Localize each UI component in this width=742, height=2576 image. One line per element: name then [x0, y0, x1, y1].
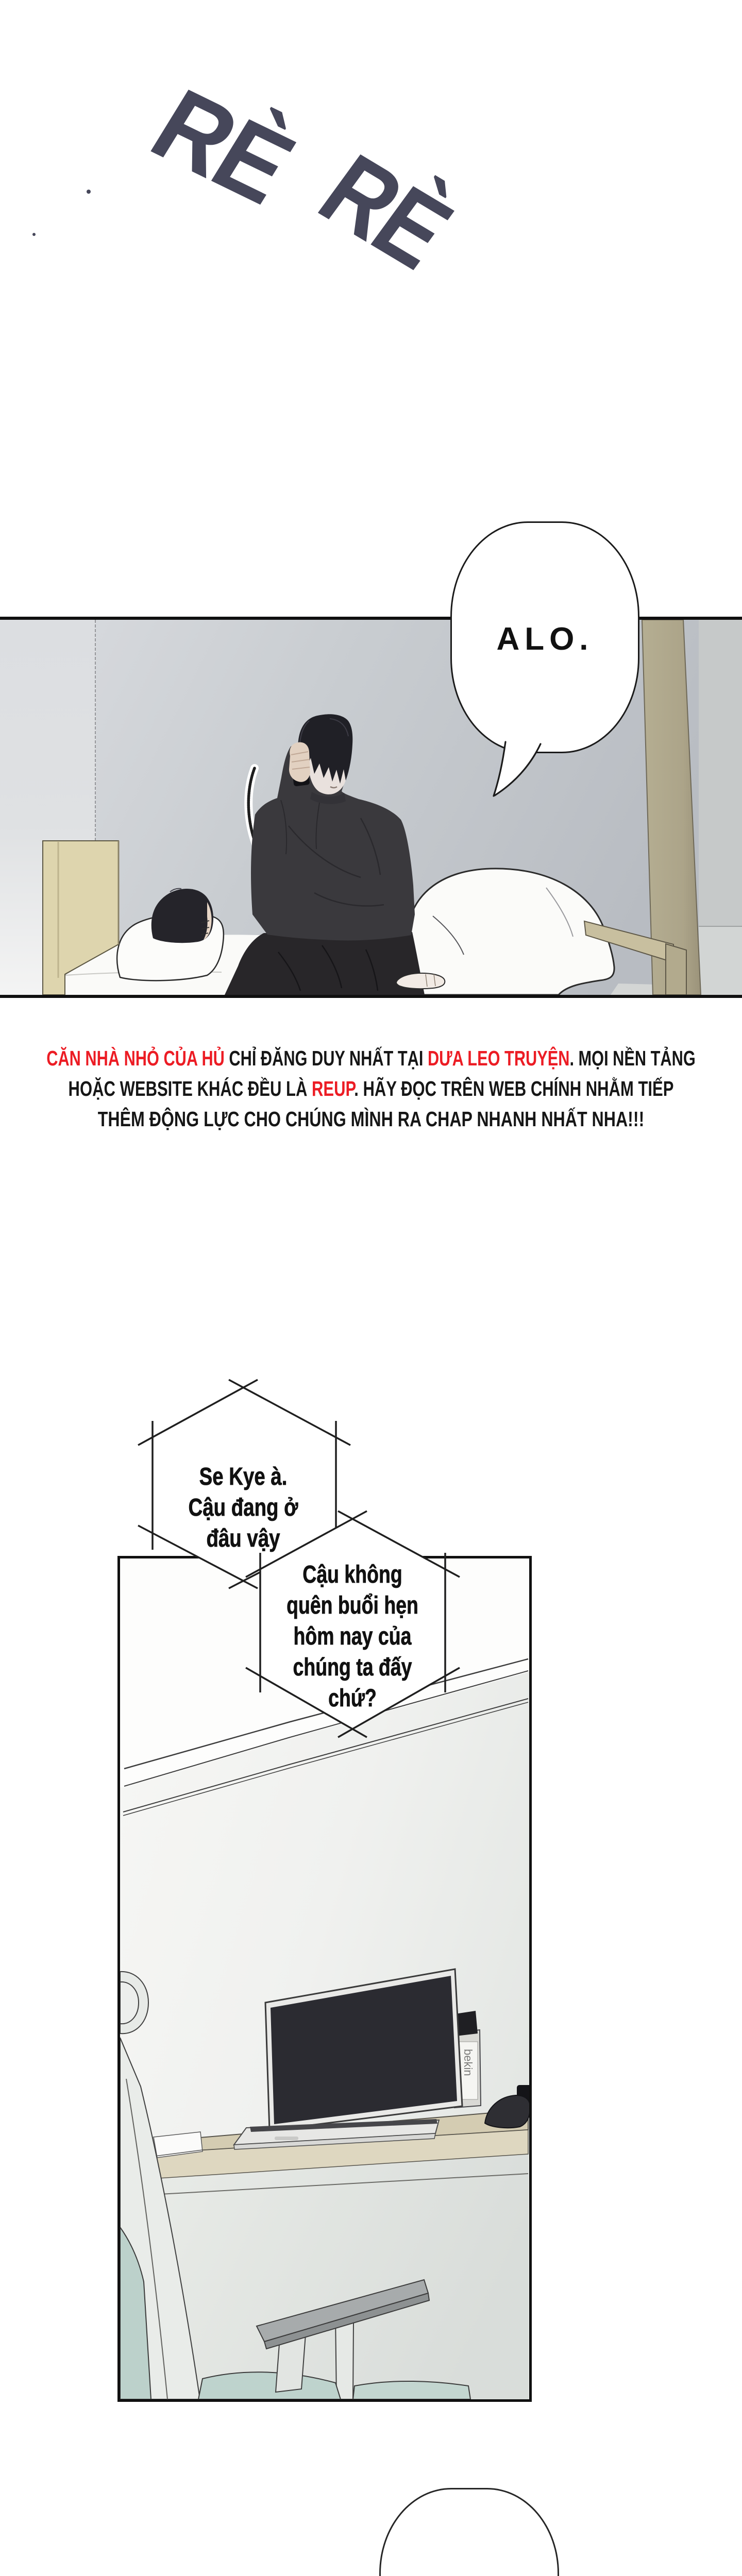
svg-text:RÈ: RÈ: [299, 133, 470, 289]
svg-text:bekin: bekin: [462, 2049, 475, 2076]
svg-text:RÈ: RÈ: [133, 67, 311, 225]
